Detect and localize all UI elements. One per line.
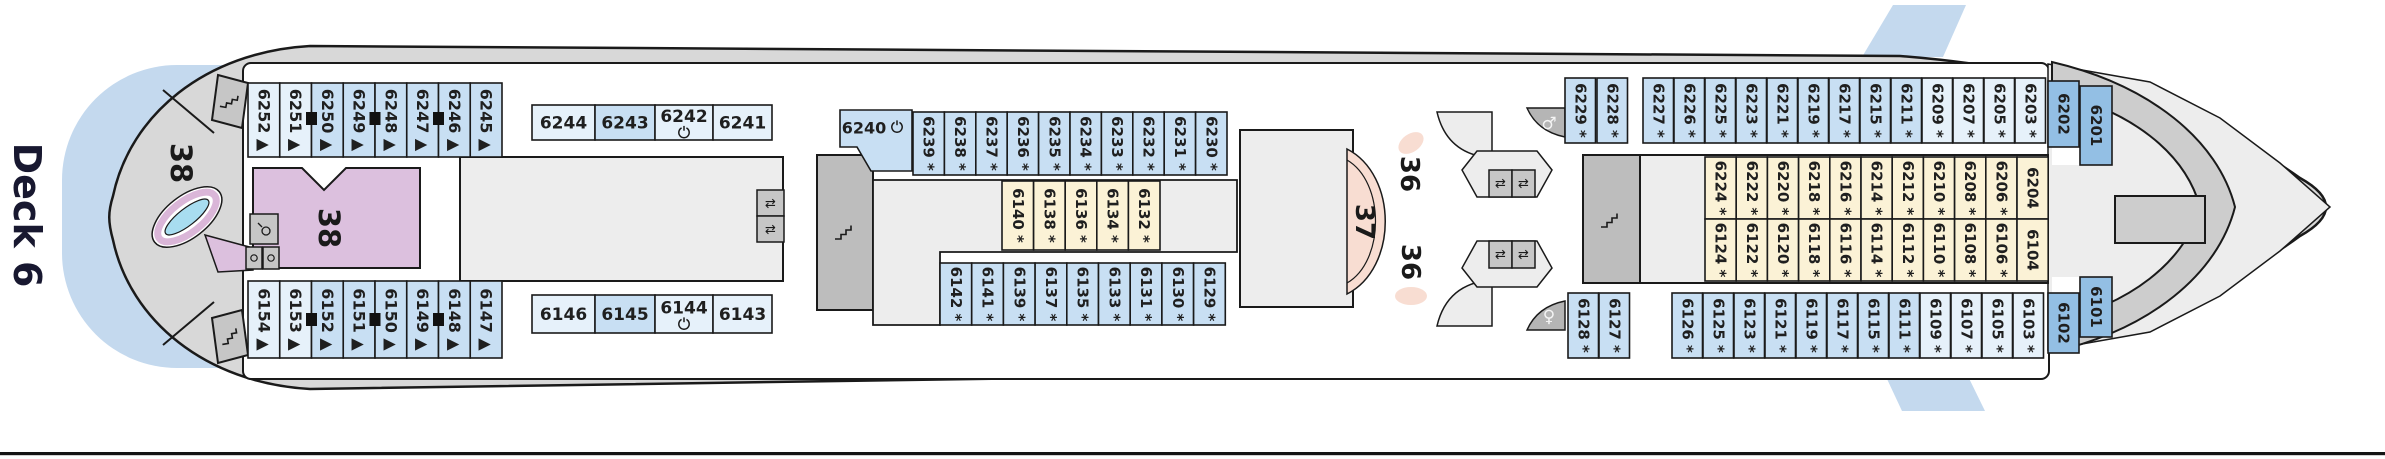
cabin-number: 6132 * — [1135, 188, 1153, 243]
cabin-number: 6126 * — [1678, 298, 1696, 353]
cabin-number: 6115 * — [1864, 298, 1882, 353]
cabin-number: 6145 — [601, 305, 648, 325]
connecting-door-marker — [433, 112, 444, 125]
cabin-6222[interactable]: 6222 * — [1736, 157, 1767, 219]
cabin-number: 6119 * — [1802, 298, 1820, 353]
cabin-6130[interactable]: 6130 * — [1162, 263, 1194, 325]
cabin-6111[interactable]: 6111 * — [1889, 293, 1920, 358]
cabin-number: 6147 ▲ — [477, 288, 496, 351]
cabin-6232[interactable]: 6232 * — [1133, 112, 1164, 175]
cabin-number: 6212 * — [1899, 161, 1917, 216]
cabin-6204[interactable]: 6204 — [2017, 157, 2048, 219]
cabin-number: 6150 ▲ — [381, 288, 400, 351]
cabin-number: 6133 * — [1105, 267, 1123, 322]
cabin-number: 6103 * — [2019, 298, 2037, 353]
cabin-6139[interactable]: 6139 * — [1003, 263, 1035, 325]
cabin-6137[interactable]: 6137 * — [1035, 263, 1067, 325]
cabin-number: 6221 * — [1773, 83, 1791, 138]
cabin-number: 6214 * — [1868, 161, 1886, 216]
cabin-number: 6248 ▲ — [381, 89, 400, 152]
cabin-6209[interactable]: 6209 * — [1922, 78, 1953, 143]
elevator-icon: ⇄ — [1495, 177, 1506, 192]
cabin-6144[interactable]: 6144 — [655, 295, 713, 333]
cabin-number: 6120 * — [1774, 223, 1792, 278]
stern-stairs-top[interactable] — [212, 75, 248, 128]
cabin-number: 6144 — [660, 299, 707, 319]
cabin-number: 6135 * — [1074, 267, 1092, 322]
cabin-number: 6129 * — [1200, 267, 1218, 322]
cabin-6104[interactable]: 6104 — [2017, 219, 2048, 281]
cabin-6226[interactable]: 6226 * — [1674, 78, 1705, 143]
aft-deck-label: 38 — [164, 143, 198, 183]
cabin-6216[interactable]: 6216 * — [1830, 157, 1861, 219]
cabin-number: 6107 * — [1957, 298, 1975, 353]
cabin-number: 6239 * — [920, 116, 938, 171]
lounge-bottom-label: 36 — [1395, 244, 1425, 280]
cabin-6228[interactable]: 6228 * — [1597, 78, 1628, 143]
cabin-6218[interactable]: 6218 * — [1799, 157, 1830, 219]
cabin-number: 6208 * — [1961, 161, 1979, 216]
top-fin-shape — [1862, 5, 1966, 57]
cabin-6245[interactable]: 6245 ▲ — [470, 83, 502, 157]
cabin-number: 6139 * — [1010, 267, 1028, 322]
cabin-6128[interactable]: 6128 * — [1568, 293, 1599, 358]
cabin-number: 6215 * — [1866, 83, 1884, 138]
cabin-6108[interactable]: 6108 * — [1955, 219, 1986, 281]
cabin-number: 6117 * — [1833, 298, 1851, 353]
cabin-number: 6109 * — [1926, 298, 1944, 353]
elevator-icon: ⇄ — [1495, 248, 1506, 263]
cabin-6127[interactable]: 6127 * — [1599, 293, 1630, 358]
cabin-number: 6134 * — [1104, 188, 1122, 243]
cabin-number: 6106 * — [1992, 223, 2010, 278]
cabin-6114[interactable]: 6114 * — [1861, 219, 1892, 281]
cabin-number: 6234 * — [1077, 116, 1095, 171]
cabin-number: 6149 ▲ — [413, 288, 432, 351]
cabin-number: 6205 * — [1990, 83, 2008, 138]
left-interior-room — [460, 157, 783, 281]
cabin-number: 6244 — [540, 114, 587, 134]
cabin-number: 6104 — [2024, 229, 2042, 271]
cabin-6107[interactable]: 6107 * — [1951, 293, 1982, 358]
stern-stairs-bottom[interactable] — [212, 310, 248, 363]
bow-notch — [2115, 196, 2205, 243]
cabin-6126[interactable]: 6126 * — [1672, 293, 1703, 358]
cabin-6234[interactable]: 6234 * — [1070, 112, 1101, 175]
cabin-number: 6112 * — [1899, 223, 1917, 278]
cabin-number: 6251 ▲ — [286, 89, 305, 152]
cabin-number: 6128 * — [1574, 298, 1592, 353]
cabin-number: 6219 * — [1804, 83, 1822, 138]
cabin-number: 6102 — [2055, 302, 2073, 344]
cabin-number: 6137 * — [1042, 267, 1060, 322]
cabin-number: 6240 — [842, 119, 887, 138]
cabin-6243[interactable]: 6243 — [595, 105, 655, 140]
cabin-number: 6154 ▲ — [254, 288, 273, 351]
cabin-6224[interactable]: 6224 * — [1705, 157, 1736, 219]
cabin-number: 6233 * — [1108, 116, 1126, 171]
cabin-6214[interactable]: 6214 * — [1861, 157, 1892, 219]
cabin-6141[interactable]: 6141 * — [972, 263, 1004, 325]
elevator-icon: ⇄ — [1518, 177, 1529, 192]
cabin-6122[interactable]: 6122 * — [1736, 219, 1767, 281]
cabin-number: 6124 * — [1712, 223, 1730, 278]
cabin-number: 6230 * — [1202, 116, 1220, 171]
cabin-6154[interactable]: 6154 ▲ — [248, 281, 280, 358]
cabin-number: 6222 * — [1743, 161, 1761, 216]
cabin-6238[interactable]: 6238 * — [944, 112, 975, 175]
cabin-6208[interactable]: 6208 * — [1955, 157, 1986, 219]
cabin-6203[interactable]: 6203 * — [2015, 78, 2046, 143]
cabin-6136[interactable]: 6136 * — [1065, 181, 1097, 250]
cabin-6231[interactable]: 6231 * — [1164, 112, 1195, 175]
cabin-6219[interactable]: 6219 * — [1798, 78, 1829, 143]
cabin-6252[interactable]: 6252 ▲ — [248, 83, 280, 157]
cabin-number: 6116 * — [1836, 223, 1854, 278]
cabin-number: 6122 * — [1743, 223, 1761, 278]
cabin-6135[interactable]: 6135 * — [1067, 263, 1099, 325]
lounge-top-label: 36 — [1394, 156, 1424, 192]
stage-label: 37 — [1349, 204, 1379, 240]
cabin-6145[interactable]: 6145 — [595, 295, 655, 333]
cabin-6124[interactable]: 6124 * — [1705, 219, 1736, 281]
cabin-number: 6228 * — [1603, 83, 1621, 138]
cabin-number: 6151 ▲ — [350, 288, 369, 351]
cabin-6210[interactable]: 6210 * — [1923, 157, 1954, 219]
cabin-6131[interactable]: 6131 * — [1130, 263, 1162, 325]
cabin-number: 6246 ▲ — [445, 89, 464, 152]
cabin-number: 6250 ▲ — [318, 89, 337, 152]
cabin-number: 6224 * — [1712, 161, 1730, 216]
cabin-6220[interactable]: 6220 * — [1767, 157, 1798, 219]
cabin-6241[interactable]: 6241 — [713, 105, 772, 140]
cabin-6235[interactable]: 6235 * — [1039, 112, 1070, 175]
cabin-6233[interactable]: 6233 * — [1101, 112, 1132, 175]
cabin-6242[interactable]: 6242 — [655, 105, 713, 140]
cabin-6138[interactable]: 6138 * — [1034, 181, 1066, 250]
cabin-6120[interactable]: 6120 * — [1767, 219, 1798, 281]
cabin-6211[interactable]: 6211 * — [1891, 78, 1922, 143]
cabin-6207[interactable]: 6207 * — [1953, 78, 1984, 143]
cabin-number: 6225 * — [1711, 83, 1729, 138]
cabin-6229[interactable]: 6229 * — [1565, 78, 1596, 143]
cabin-6230[interactable]: 6230 * — [1196, 112, 1227, 175]
cabin-number: 6220 * — [1774, 161, 1792, 216]
cabin-number: 6247 ▲ — [413, 89, 432, 152]
cabin-number: 6138 * — [1040, 188, 1058, 243]
cabin-6133[interactable]: 6133 * — [1099, 263, 1131, 325]
cabin-number: 6218 * — [1805, 161, 1823, 216]
aft-room-label: 38 — [312, 208, 346, 248]
cabin-6106[interactable]: 6106 * — [1986, 219, 2017, 281]
cabin-number: 6229 * — [1571, 83, 1589, 138]
cabin-number: 6136 * — [1072, 188, 1090, 243]
cabin-number: 6123 * — [1740, 298, 1758, 353]
cabin-6143[interactable]: 6143 — [713, 295, 772, 333]
cabin-number: 6206 * — [1992, 161, 2010, 216]
cabin-6125[interactable]: 6125 * — [1703, 293, 1734, 358]
cabin-6121[interactable]: 6121 * — [1765, 293, 1796, 358]
male-icon: ♂ — [1541, 114, 1556, 134]
cabin-6134[interactable]: 6134 * — [1097, 181, 1129, 250]
lounge-oval-bottom — [1395, 287, 1427, 305]
cabin-number: 6209 * — [1928, 83, 1946, 138]
theatre-block — [1240, 130, 1353, 307]
cabin-number: 6226 * — [1680, 83, 1698, 138]
cabin-number: 6143 — [719, 305, 766, 325]
cabin-number: 6232 * — [1140, 116, 1158, 171]
connecting-door-marker — [370, 112, 381, 125]
cabin-6132[interactable]: 6132 * — [1128, 181, 1160, 250]
cabin-6217[interactable]: 6217 * — [1829, 78, 1860, 143]
bow-white-gap-bottom — [2052, 277, 2079, 293]
connecting-door-marker — [433, 313, 444, 326]
stern-utility-room-2 — [246, 247, 262, 269]
cabin-number: 6125 * — [1709, 298, 1727, 353]
cabin-number: 6252 ▲ — [254, 89, 273, 152]
cabin-6215[interactable]: 6215 * — [1860, 78, 1891, 143]
cabin-number: 6201 — [2087, 105, 2105, 147]
cabin-6117[interactable]: 6117 * — [1827, 293, 1858, 358]
stern-utility-room-1 — [250, 214, 278, 244]
bow-white-gap-top — [2052, 147, 2079, 165]
cabin-number: 6207 * — [1959, 83, 1977, 138]
cabin-6119[interactable]: 6119 * — [1796, 293, 1827, 358]
deck-title: Deck 6 — [5, 143, 49, 288]
connecting-door-marker — [306, 313, 317, 326]
cabin-number: 6237 * — [983, 116, 1001, 171]
cabin-number: 6105 * — [1988, 298, 2006, 353]
cabin-number: 6249 ▲ — [350, 89, 369, 152]
cabin-6101[interactable]: 6101 — [2080, 277, 2112, 337]
cabin-number: 6235 * — [1045, 116, 1063, 171]
cabin-6244[interactable]: 6244 — [532, 105, 595, 140]
cabin-number: 6142 * — [947, 267, 965, 322]
cabin-number: 6210 * — [1930, 161, 1948, 216]
cabin-6110[interactable]: 6110 * — [1923, 219, 1954, 281]
cabin-6212[interactable]: 6212 * — [1892, 157, 1923, 219]
cabin-6115[interactable]: 6115 * — [1858, 293, 1889, 358]
cabin-6129[interactable]: 6129 * — [1194, 263, 1226, 325]
cabin-6225[interactable]: 6225 * — [1705, 78, 1736, 143]
cabin-number: 6243 — [601, 114, 648, 134]
cabin-6116[interactable]: 6116 * — [1830, 219, 1861, 281]
cabin-number: 6121 * — [1771, 298, 1789, 353]
cabin-6103[interactable]: 6103 * — [2013, 293, 2044, 358]
cabin-6206[interactable]: 6206 * — [1986, 157, 2017, 219]
cabin-number: 6227 * — [1649, 83, 1667, 138]
cabin-number: 6204 — [2024, 167, 2042, 209]
connecting-door-marker — [306, 112, 317, 125]
cabin-number: 6223 * — [1742, 83, 1760, 138]
cabin-number: 6217 * — [1835, 83, 1853, 138]
female-icon: ♀ — [1543, 307, 1555, 327]
cabin-number: 6203 * — [2021, 83, 2039, 138]
cabin-6237[interactable]: 6237 * — [976, 112, 1007, 175]
cabin-6146[interactable]: 6146 — [532, 295, 595, 333]
cabin-6147[interactable]: 6147 ▲ — [470, 281, 502, 358]
bottom-border-line — [0, 452, 2385, 455]
cabin-number: 6127 * — [1605, 298, 1623, 353]
cabin-number: 6153 ▲ — [286, 288, 305, 351]
cabin-number: 6216 * — [1836, 161, 1854, 216]
cabin-number: 6131 * — [1137, 267, 1155, 322]
cabin-6112[interactable]: 6112 * — [1892, 219, 1923, 281]
cabin-number: 6141 * — [979, 267, 997, 322]
cabin-6227[interactable]: 6227 * — [1643, 78, 1674, 143]
cabin-number: 6152 ▲ — [318, 288, 337, 351]
cabin-6118[interactable]: 6118 * — [1799, 219, 1830, 281]
elevator-icon: ⇄ — [765, 197, 776, 212]
elevator-icon: ⇄ — [765, 223, 776, 238]
cabin-6202[interactable]: 6202 — [2048, 81, 2079, 147]
cabin-number: 6146 — [540, 305, 587, 325]
cabin-6142[interactable]: 6142 * — [940, 263, 972, 325]
cabin-number: 6110 * — [1930, 223, 1948, 278]
cabin-number: 6241 — [719, 114, 766, 134]
cabin-number: 6236 * — [1014, 116, 1032, 171]
cabin-number: 6114 * — [1868, 223, 1886, 278]
cabin-number: 6101 — [2087, 286, 2105, 328]
cabin-6239[interactable]: 6239 * — [913, 112, 944, 175]
cabin-number: 6202 — [2055, 93, 2073, 135]
cabin-number: 6130 * — [1169, 267, 1187, 322]
cabin-6201[interactable]: 6201 — [2080, 86, 2112, 165]
cabin-6205[interactable]: 6205 * — [1984, 78, 2015, 143]
cabin-number: 6211 * — [1897, 83, 1915, 138]
cabin-6236[interactable]: 6236 * — [1007, 112, 1038, 175]
cabin-number: 6245 ▲ — [477, 89, 496, 152]
cabin-6105[interactable]: 6105 * — [1982, 293, 2013, 358]
cabin-6223[interactable]: 6223 * — [1736, 78, 1767, 143]
cabin-6123[interactable]: 6123 * — [1734, 293, 1765, 358]
cabin-6221[interactable]: 6221 * — [1767, 78, 1798, 143]
deck-plan: 38 38 ⇄ ⇄ 37 36 36 ⇄ ⇄ ⇄ ⇄ — [0, 0, 2385, 459]
cabin-number: 6111 * — [1895, 298, 1913, 353]
cabin-number: 6238 * — [951, 116, 969, 171]
cabin-number: 6231 * — [1171, 116, 1189, 171]
cabin-number: 6148 ▲ — [445, 288, 464, 351]
cabin-6109[interactable]: 6109 * — [1920, 293, 1951, 358]
stern-utility-room-3 — [263, 247, 279, 269]
cabin-6140[interactable]: 6140 * — [1002, 181, 1034, 250]
cabin-number: 6118 * — [1805, 223, 1823, 278]
cabin-number: 6242 — [660, 107, 707, 127]
elevator-icon: ⇄ — [1518, 248, 1529, 263]
midship-stairs-block[interactable] — [817, 155, 873, 310]
connecting-door-marker — [370, 313, 381, 326]
cabin-number: 6108 * — [1961, 223, 1979, 278]
cabin-6102[interactable]: 6102 — [2048, 293, 2079, 353]
cabin-number: 6140 * — [1009, 188, 1027, 243]
